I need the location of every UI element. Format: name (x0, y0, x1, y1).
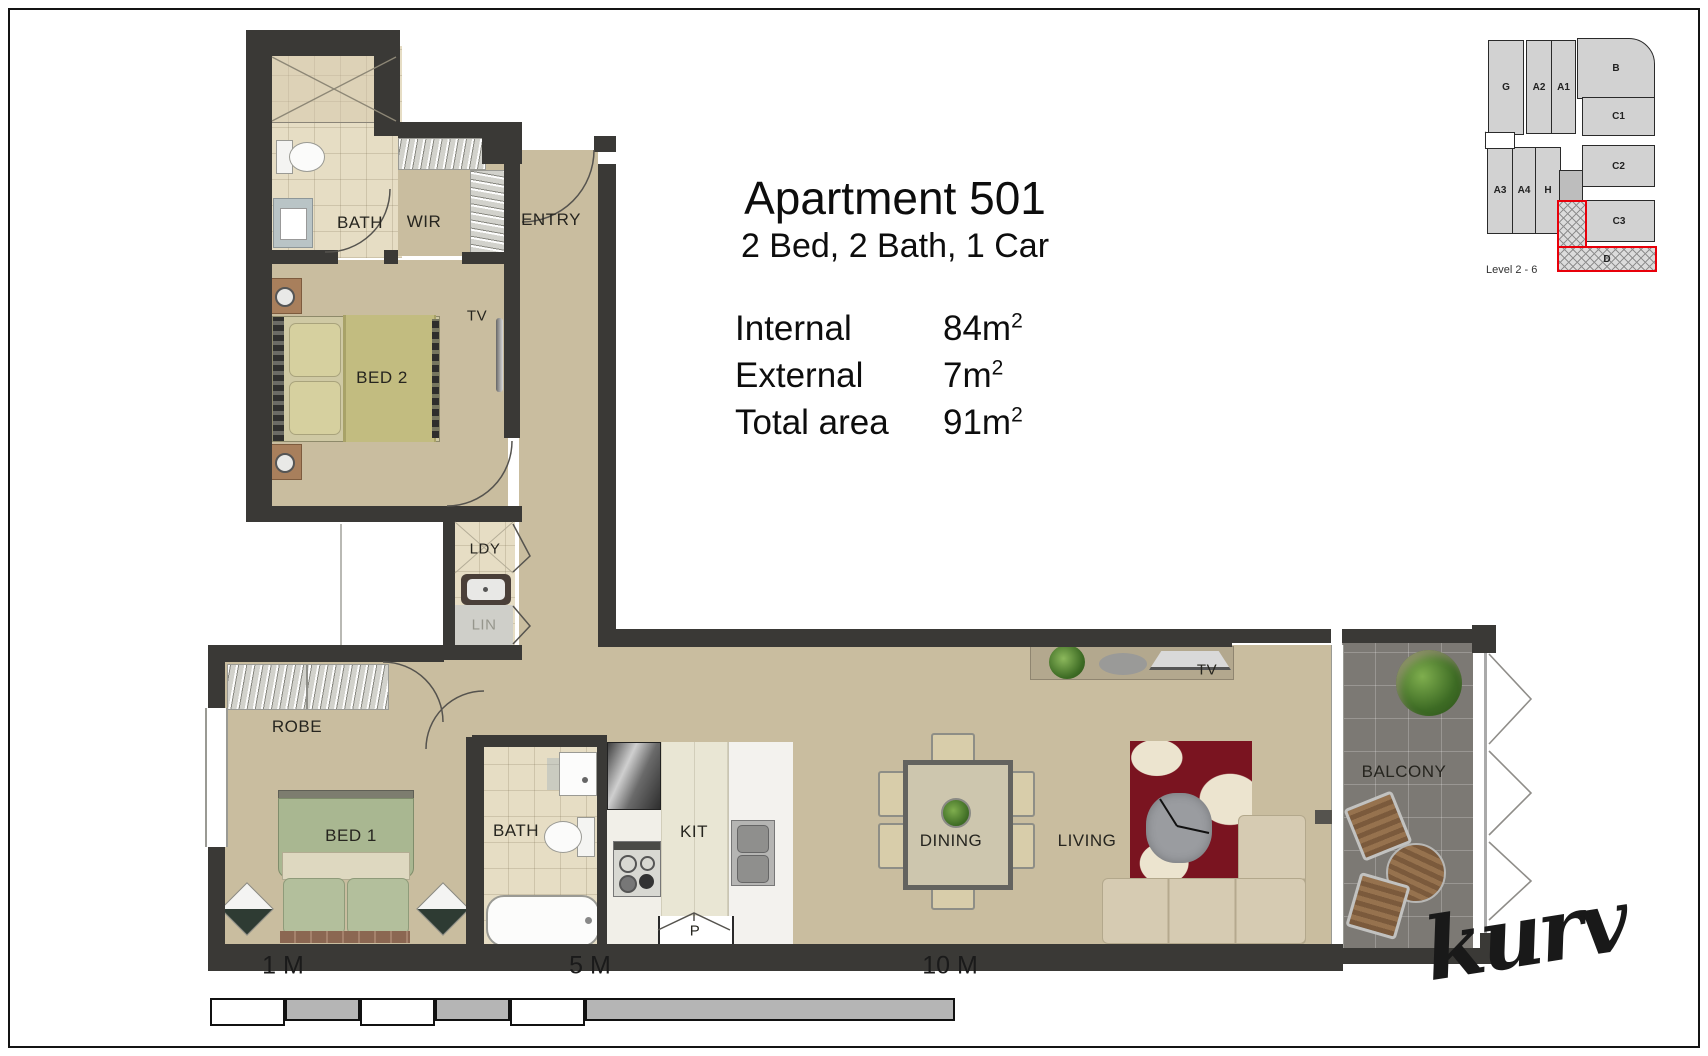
sofa-seat (1102, 878, 1306, 944)
wall (1342, 629, 1473, 643)
scale-segment (285, 998, 360, 1021)
console-bowl (1099, 653, 1147, 675)
locator-unit-d-wing (1557, 200, 1587, 248)
sheet (282, 852, 410, 880)
table-plant (941, 798, 971, 828)
page-subtitle: 2 Bed, 2 Bath, 1 Car (600, 224, 1190, 268)
area-row-internal: Internal 84m2 (735, 305, 1023, 352)
locator-unit-c3: C3 (1583, 200, 1655, 242)
wall (598, 629, 1232, 647)
wall (374, 30, 400, 136)
locator-level-label: Level 2 - 6 (1486, 264, 1537, 276)
burner (640, 856, 655, 871)
scale-segment (210, 998, 285, 1026)
toilet-bowl (289, 142, 325, 172)
door-jamb (598, 152, 616, 164)
cooktop-controls (614, 842, 660, 850)
scale-segment (510, 998, 585, 1026)
locator-core (1559, 170, 1583, 202)
room-label-bath-lower: BATH (493, 821, 539, 841)
toilet-bowl (544, 821, 582, 853)
level-locator-map: G A2 A1 B C1 C2 C3 A3 A4 H D Level 2 - 6 (1362, 28, 1662, 283)
vanity (273, 198, 313, 248)
locator-stair (1485, 132, 1515, 149)
dining-table (903, 760, 1013, 890)
area-label: External (735, 352, 943, 399)
headboard (273, 317, 284, 441)
scale-segment (585, 998, 955, 1021)
robe-rack (227, 664, 389, 710)
wall (208, 645, 225, 708)
wall (246, 30, 272, 522)
pillow (283, 878, 345, 935)
wall (384, 250, 398, 264)
scale-mark-5m: 5 M (569, 952, 611, 981)
wall (208, 847, 225, 945)
wall (597, 735, 607, 947)
page-title: Apartment 501 (600, 172, 1190, 224)
locator-unit-a1: A1 (1551, 40, 1576, 134)
scale-segment (360, 998, 435, 1026)
wall (443, 645, 522, 660)
room-label-kit: KIT (680, 822, 708, 842)
wall (1232, 629, 1331, 643)
window (205, 708, 228, 847)
wall (466, 737, 484, 947)
drain (582, 777, 588, 783)
bed1-bed (278, 790, 412, 945)
room-label-bath-upper: BATH (337, 213, 383, 233)
kitchen-sink (731, 820, 775, 886)
console-plant (1049, 645, 1085, 679)
locator-unit-a2: A2 (1526, 40, 1552, 134)
locator-unit-c2: C2 (1582, 145, 1655, 187)
label-tv-bed2: TV (467, 308, 487, 325)
laundry-basin (467, 579, 505, 600)
tub-drain (585, 917, 592, 924)
wall (443, 506, 455, 660)
door-handle (1315, 810, 1332, 824)
pillow (347, 878, 409, 935)
room-label-bed2: BED 2 (356, 368, 408, 388)
burner (619, 855, 637, 873)
sliding-door (1331, 645, 1344, 948)
bathtub (486, 895, 600, 947)
area-label: Total area (735, 399, 943, 446)
superscript: 2 (1011, 309, 1023, 332)
wall (472, 735, 605, 747)
room-label-robe: ROBE (272, 717, 322, 737)
superscript: 2 (992, 356, 1004, 379)
room-label-bed1: BED 1 (325, 826, 377, 846)
structure-line (340, 524, 342, 645)
wall (504, 134, 520, 438)
drain (483, 587, 488, 592)
label-pantry: P (690, 923, 701, 940)
scale-mark-10m: 10 M (922, 952, 978, 981)
wall (208, 944, 1343, 971)
scale-segment (435, 998, 510, 1021)
room-label-living: LIVING (1058, 831, 1117, 851)
locator-unit-d: D (1557, 246, 1657, 272)
room-label-balcony: BALCONY (1362, 762, 1447, 782)
pillow (289, 381, 341, 435)
floorplan-page: BATH WIR ENTRY TV BED 2 LDY LIN ROBE BED… (0, 0, 1708, 1056)
superscript: 2 (1011, 403, 1023, 426)
sink-bowl (737, 855, 769, 883)
lamp (275, 453, 295, 473)
tv-bed2 (496, 318, 503, 392)
pillow (289, 323, 341, 377)
sink-bowl (737, 825, 769, 853)
robe-divider (306, 665, 308, 709)
area-table: Internal 84m2 External 7m2 Total area 91… (735, 305, 1023, 446)
scale-mark-1m: 1 M (262, 952, 304, 981)
label-tv-living: TV (1197, 662, 1217, 679)
area-value: 91m2 (943, 399, 1023, 446)
wall (246, 250, 338, 264)
coffee-table (1146, 793, 1212, 863)
room-label-entry: ENTRY (521, 210, 581, 230)
locator-unit-a3: A3 (1487, 147, 1513, 234)
balcony-plant (1396, 650, 1462, 716)
area-row-total: Total area 91m2 (735, 399, 1023, 446)
headboard (280, 931, 410, 943)
area-value: 84m2 (943, 305, 1023, 352)
fridge (607, 742, 661, 810)
lamp (275, 287, 295, 307)
area-label: Internal (735, 305, 943, 352)
locator-unit-c1: C1 (1582, 97, 1655, 136)
wir-rack-top (398, 138, 486, 170)
room-label-ldy: LDY (470, 541, 501, 558)
burner (619, 875, 637, 893)
room-label-lin: LIN (472, 617, 497, 634)
locator-unit-b: B (1577, 38, 1655, 99)
area-value: 7m2 (943, 352, 1003, 399)
basin (280, 208, 307, 240)
title-block: Apartment 501 2 Bed, 2 Bath, 1 Car (600, 172, 1190, 268)
scale-bar (210, 998, 955, 1028)
locator-unit-a4: A4 (1512, 147, 1536, 234)
wall (208, 645, 444, 662)
bed-foot (432, 319, 439, 438)
wall (246, 506, 522, 522)
locator-unit-g: G (1488, 40, 1524, 135)
basin (559, 752, 597, 796)
room-label-dining: DINING (920, 831, 983, 851)
area-row-external: External 7m2 (735, 352, 1023, 399)
cooktop (613, 841, 661, 897)
room-label-wir: WIR (407, 212, 442, 232)
laundry-tub (461, 574, 511, 605)
tv-living (1149, 651, 1231, 670)
burner (639, 874, 654, 889)
wall (1472, 625, 1496, 653)
